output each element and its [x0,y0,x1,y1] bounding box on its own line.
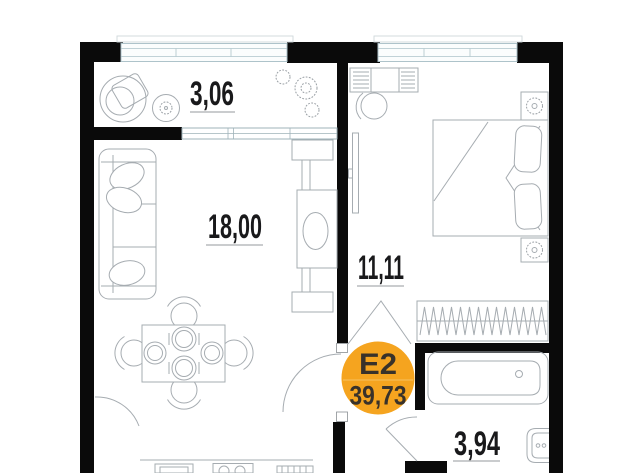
balcony-window-sill [117,36,293,42]
living-room-area-label: 18,00 [208,208,262,246]
balcony-glazed-door [182,128,337,139]
sink-symbol [527,429,549,463]
bathtub-symbol [428,352,548,404]
bathroom-door-arc [386,417,417,429]
door-jamb-bottom [337,412,348,422]
wall-bottom-jamb [405,461,447,473]
bathroom-door-leaf [386,429,417,461]
unit-badge-label: Е2 [359,348,397,381]
nightstand-symbol [521,92,548,120]
desk-chair-symbol [356,93,387,119]
unit-badge: Е2 39,73 [342,342,415,415]
nightstand-symbol-2 [521,238,548,262]
wall-bathroom-left [415,353,425,410]
sofa-symbol [99,149,156,299]
bathroom-area-label: 3,94 [454,425,500,463]
bedroom-window [378,44,517,62]
tv-unit-symbol [292,140,337,312]
bedroom-area-label: 11,11 [358,249,404,287]
side-table-symbol [153,95,180,122]
dining-set-symbol [115,297,253,409]
balcony-area-label: 3,06 [190,75,234,113]
bedroom-window-sill [374,36,522,42]
bedroom-furniture [349,68,549,341]
wall-middle-upper [337,63,348,343]
wall-left [80,42,94,473]
bedroom-door-leaf [348,301,411,344]
kitchen-counter-symbol [140,460,313,473]
wall-right [549,42,563,473]
armchair-symbol [100,72,149,122]
door-jamb-top [337,344,348,353]
balcony-window [121,44,287,62]
wall-top-left-corner [80,42,123,62]
wall-balcony-divider [94,127,182,140]
wall-middle-lower [333,422,345,473]
unit-badge-total-area: 39,73 [350,381,407,411]
wall-tv-symbol [349,133,359,213]
plants-icon [276,70,319,117]
living-room-door-arc [283,354,341,412]
wardrobe-symbol [417,301,548,341]
dresser-symbol [350,68,418,92]
bed-symbol [433,120,548,236]
kitchen-door-arc [95,397,139,426]
living-room-furniture [99,140,337,473]
floor-plan: 3,06 18,00 11,11 3,94 Е2 39,73 [0,0,640,473]
wall-top-pier [287,42,380,63]
